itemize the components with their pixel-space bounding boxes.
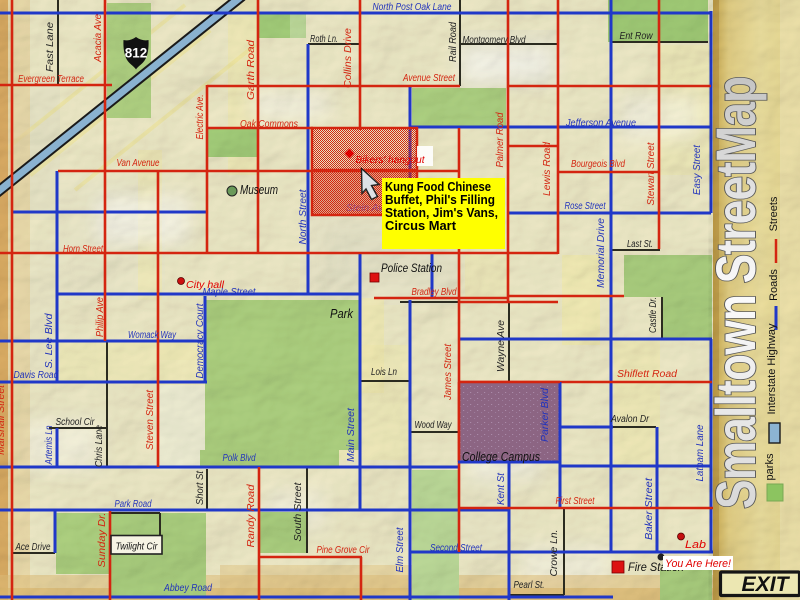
svg-text:Main Street: Main Street: [345, 407, 357, 462]
svg-text:Short St: Short St: [194, 470, 206, 505]
svg-text:Lewis Road: Lewis Road: [541, 141, 553, 196]
svg-text:Philip Ave: Philip Ave: [94, 297, 106, 337]
svg-text:School Cir: School Cir: [56, 417, 96, 428]
svg-text:Ace Drive: Ace Drive: [15, 542, 51, 553]
svg-text:812: 812: [125, 46, 148, 61]
svg-text:Bikers' hangout: Bikers' hangout: [356, 154, 426, 166]
svg-text:Circus Mart: Circus Mart: [385, 219, 457, 233]
svg-text:Police Station: Police Station: [381, 261, 442, 275]
svg-text:Evergreen Terrace: Evergreen Terrace: [18, 74, 84, 85]
svg-text:Marshall Street: Marshall Street: [0, 384, 7, 455]
svg-text:Avalon Dr: Avalon Dr: [610, 414, 649, 425]
svg-text:Davis Road: Davis Road: [14, 370, 59, 381]
svg-text:Streets: Streets: [768, 196, 780, 231]
svg-text:Park Road: Park Road: [115, 499, 152, 510]
svg-text:Last St.: Last St.: [627, 239, 653, 250]
svg-text:Pine Grove Cir: Pine Grove Cir: [317, 545, 371, 556]
svg-text:Twilight Cir: Twilight Cir: [116, 542, 159, 553]
svg-text:North Post Oak Lane: North Post Oak Lane: [373, 2, 452, 13]
svg-text:Pearl St.: Pearl St.: [514, 580, 545, 591]
svg-text:South Street: South Street: [292, 481, 304, 541]
svg-text:EXIT: EXIT: [742, 573, 791, 596]
svg-text:Van Avenue: Van Avenue: [117, 158, 160, 169]
svg-text:Elm Street: Elm Street: [394, 527, 406, 573]
svg-text:James Street: James Street: [442, 343, 454, 401]
svg-text:Ent Row: Ent Row: [620, 31, 654, 42]
svg-text:Memorial Drive: Memorial Drive: [595, 218, 607, 288]
svg-text:Bourgeois Blvd: Bourgeois Blvd: [571, 159, 625, 170]
svg-text:Bradley Blvd: Bradley Blvd: [412, 287, 457, 298]
svg-text:Womack Way: Womack Way: [128, 330, 177, 341]
svg-text:Abbey Road: Abbey Road: [163, 583, 212, 594]
svg-text:You Are Here!: You Are Here!: [665, 558, 731, 570]
svg-text:Rose Street: Rose Street: [565, 201, 607, 212]
svg-text:Kent St: Kent St: [495, 472, 507, 505]
svg-text:Station, Jim's Vans,: Station, Jim's Vans,: [385, 206, 498, 220]
svg-text:North Street: North Street: [297, 188, 309, 244]
svg-text:Steven Street: Steven Street: [144, 389, 156, 450]
svg-text:Rail Road: Rail Road: [447, 21, 459, 62]
svg-text:Wayne Ave: Wayne Ave: [495, 320, 507, 372]
svg-text:Parker Blvd: Parker Blvd: [539, 387, 551, 442]
svg-text:Garth Road: Garth Road: [245, 39, 257, 100]
svg-text:Chris Lane: Chris Lane: [93, 425, 105, 467]
svg-text:College Campus: College Campus: [462, 450, 540, 464]
svg-text:Collins Drive: Collins Drive: [342, 28, 354, 88]
svg-text:Wood Way: Wood Way: [415, 420, 453, 431]
svg-text:Roth Ln.: Roth Ln.: [310, 34, 338, 45]
svg-text:Polk Blvd: Polk Blvd: [223, 453, 256, 464]
svg-text:Artemis Ln: Artemis Ln: [43, 425, 55, 465]
svg-text:Interstate Highway: Interstate Highway: [766, 323, 778, 415]
svg-text:City hall: City hall: [186, 279, 225, 291]
svg-text:Montgomery Blvd: Montgomery Blvd: [463, 35, 526, 46]
svg-text:Castle Dr.: Castle Dr.: [647, 297, 659, 333]
svg-text:Crowe Ln.: Crowe Ln.: [548, 530, 560, 577]
svg-text:Democracy Court: Democracy Court: [194, 303, 206, 379]
svg-text:Sunday Dr.: Sunday Dr.: [96, 513, 108, 568]
svg-text:S. Lee Blvd: S. Lee Blvd: [43, 312, 55, 368]
svg-text:Palmer Road: Palmer Road: [494, 111, 506, 167]
svg-text:Oak Commons: Oak Commons: [240, 119, 298, 130]
svg-text:Baker Street: Baker Street: [643, 477, 655, 540]
svg-text:Roads: Roads: [768, 269, 780, 301]
svg-text:Easy Street: Easy Street: [691, 144, 703, 195]
svg-text:Avenue Street: Avenue Street: [402, 73, 456, 84]
svg-text:Electric Ave.: Electric Ave.: [194, 95, 206, 140]
svg-text:Park: Park: [330, 307, 354, 321]
svg-text:Lab: Lab: [685, 539, 706, 551]
svg-text:Museum: Museum: [240, 183, 278, 197]
svg-text:Fast Lane: Fast Lane: [44, 22, 56, 72]
svg-text:Randy Road: Randy Road: [245, 483, 257, 547]
svg-text:Stewart Street: Stewart Street: [645, 141, 657, 205]
svg-text:Second Street: Second Street: [430, 543, 483, 554]
svg-text:Smalltown StreetMap: Smalltown StreetMap: [704, 77, 767, 509]
svg-text:Acacia Ave: Acacia Ave: [92, 14, 104, 63]
svg-text:Buffet, Phil's Filling: Buffet, Phil's Filling: [385, 193, 495, 207]
svg-text:parks: parks: [764, 453, 776, 480]
svg-text:First Street: First Street: [556, 496, 596, 507]
svg-text:Lois Ln: Lois Ln: [371, 367, 397, 378]
svg-text:Shiflett Road: Shiflett Road: [617, 369, 677, 380]
svg-text:Kung Food Chinese: Kung Food Chinese: [385, 180, 491, 194]
svg-text:Jefferson Avenue: Jefferson Avenue: [565, 118, 636, 129]
svg-text:Horn Street: Horn Street: [63, 244, 104, 255]
